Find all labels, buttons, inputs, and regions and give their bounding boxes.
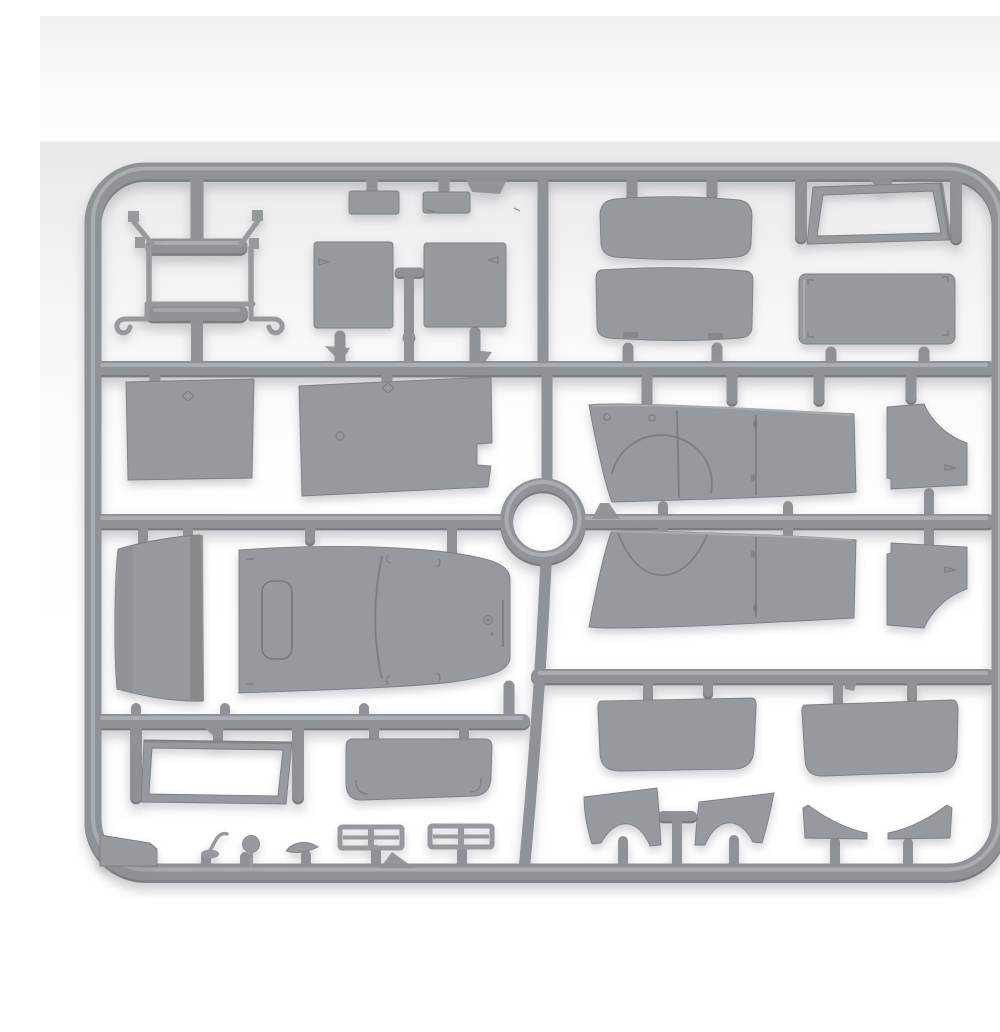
part-windshield-frame — [807, 183, 950, 244]
part-grille-slat-b — [430, 826, 492, 847]
part-bulkhead-panel — [126, 379, 254, 480]
part-grille-slat-a — [340, 827, 402, 848]
part-floor-panel — [299, 377, 492, 496]
part-cab-roof — [239, 546, 510, 693]
part-fender-upper — [887, 404, 967, 489]
sprue-illustration: Injection-molded gray styrene model kit … — [40, 16, 1000, 1016]
part-glass-panel-right — [802, 700, 958, 776]
part-small-box-b — [423, 192, 470, 213]
part-glass-panel-left — [598, 698, 756, 771]
sprue-photo: Injection-molded gray styrene model kit … — [40, 16, 1000, 1016]
part-bench-cushion — [600, 197, 752, 260]
part-splash-wedge-left — [803, 805, 867, 839]
part-door-panel — [799, 274, 955, 344]
part-body-side-lower — [589, 530, 856, 628]
part-windscreen-panel — [346, 739, 492, 800]
part-gear-lever — [201, 834, 227, 859]
part-fender-lower — [887, 543, 967, 628]
part-body-side-upper — [589, 404, 856, 502]
part-small-box-a — [349, 191, 399, 214]
part-cab-rear-panel — [115, 535, 204, 701]
part-seat-back-left — [314, 242, 393, 328]
part-corner-wedge — [100, 835, 157, 866]
part-seat-back-right — [424, 243, 506, 327]
part-window-frame — [141, 740, 292, 804]
part-bench-backrest — [596, 268, 753, 341]
part-splash-wedge-right — [888, 805, 952, 839]
part-visor-strip — [286, 842, 318, 852]
